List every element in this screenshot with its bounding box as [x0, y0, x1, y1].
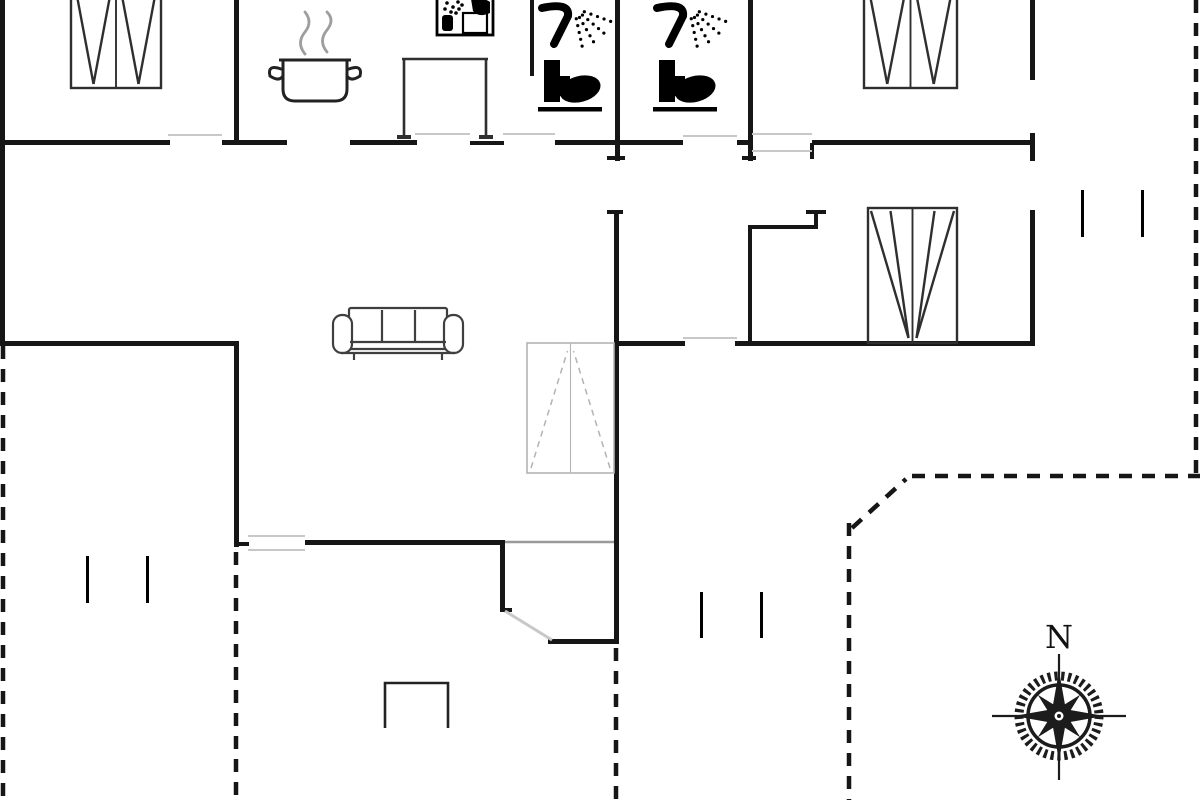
shower-bath1-spray-dot-0 — [583, 10, 586, 13]
sink-spray-dot-1 — [451, 5, 455, 9]
sink-spray-dot-5 — [443, 7, 447, 11]
top-wall-a — [0, 140, 170, 145]
bed-bedroom3-duvet-1 — [891, 211, 909, 338]
shower-bath2-spray-dot-19 — [696, 45, 699, 48]
sink-spray-dot-2 — [456, 0, 460, 4]
closet-north-wall — [748, 225, 818, 229]
steam-swirl-2 — [323, 12, 332, 52]
bed-bedroom2-duvet-2 — [914, 0, 934, 84]
shower-bath2-spray-dot-13 — [712, 27, 715, 30]
exterior-left-wall — [0, 0, 5, 346]
vestibule-south-wall — [548, 639, 618, 644]
terrace-tick-east-2 — [1141, 190, 1144, 237]
shower-bath2-spray-dot-7 — [691, 24, 694, 27]
entrance-door-swing — [505, 611, 552, 640]
bed-bedroom1-duvet-2 — [119, 0, 139, 84]
closet-west-wall — [748, 225, 752, 345]
shower-bath2-spray-dot-6 — [696, 22, 699, 25]
bed-bedroom1-duvet-0 — [74, 0, 94, 84]
toilet-bath1-tank — [544, 60, 560, 102]
bath2-east-wall — [748, 0, 753, 161]
shower-bath1-spray-dot-18 — [592, 40, 595, 43]
pot-body — [283, 60, 347, 101]
shower-bath1-spray-dot-8 — [596, 15, 599, 18]
shower-bath1-spray-dot-6 — [581, 22, 584, 25]
bed-bedroom1-duvet-1 — [94, 0, 114, 84]
mid-wall-west — [0, 341, 239, 346]
sink-spray-dot-4 — [457, 7, 461, 11]
shower-bath1-spray-dot-5 — [586, 18, 589, 21]
sink-basin — [463, 13, 487, 33]
top-wall-c — [350, 140, 417, 145]
shower-bath1-spray-dot-19 — [581, 45, 584, 48]
bed-bedroom2-duvet-1 — [887, 0, 907, 84]
shower-bath2-spray-dot-4 — [704, 13, 707, 16]
floor-plan: N — [0, 0, 1200, 800]
bath-divider-wall — [615, 0, 620, 161]
top-wall-d — [470, 141, 504, 145]
shower-bath2-spray-dot-18 — [707, 40, 710, 43]
bedroom2-east-wall-upper — [1030, 0, 1035, 80]
counter-foot-right — [479, 135, 493, 139]
wall-end-tick-d — [607, 210, 623, 214]
shower-bath1-spray-dot-3 — [575, 17, 578, 20]
shower-bath1-spray-dot-17 — [602, 31, 605, 34]
shower-bath2-spray-dot-17 — [717, 31, 720, 34]
terrace-tick-south-1 — [700, 592, 703, 638]
pot-handle-right — [347, 68, 361, 79]
bed-bedroom3-duvet-0 — [871, 211, 909, 338]
entrance-step — [385, 683, 448, 728]
shower-bath1-spray-dot-16 — [609, 20, 612, 23]
bed-bedroom2-duvet-3 — [934, 0, 954, 84]
sink-soap — [442, 15, 453, 31]
shower-bath1-spray-dot-10 — [585, 28, 588, 31]
terrace-tick-west-2 — [146, 556, 149, 603]
shower-bath2-spray-dot-1 — [696, 13, 699, 16]
bed-extra-gray-duvet-1 — [574, 351, 611, 468]
shower-bath1-spray-dot-9 — [592, 22, 595, 25]
sink-stub-wall — [530, 0, 534, 76]
sofa-arm-left — [333, 315, 352, 353]
shower-bath1-arm — [542, 6, 568, 44]
pot-handle-left — [269, 68, 283, 79]
shower-bath1-spray-dot-12 — [602, 17, 605, 20]
vestibule-west-wall — [500, 540, 505, 612]
shower-bath2-spray-dot-8 — [711, 15, 714, 18]
shower-bath1-spray-dot-11 — [578, 31, 581, 34]
wall-end-tick-c — [1019, 141, 1031, 145]
terrace-tick-east-1 — [1081, 190, 1084, 237]
living-west-wall — [234, 341, 239, 547]
toilet-bath2-base — [653, 107, 717, 112]
bedroom3-east-wall — [1030, 210, 1035, 346]
top-wall-g — [812, 140, 1034, 145]
compass-north-label: N — [1045, 618, 1073, 656]
sink-spray-dot-3 — [449, 10, 453, 14]
toilet-bath2-tank — [659, 60, 675, 102]
sink-spray-dot-0 — [445, 1, 449, 5]
shower-bath1-spray-dot-7 — [576, 24, 579, 27]
shower-bath2-spray-dot-14 — [703, 34, 706, 37]
wall-end-tick-a — [607, 156, 625, 160]
shower-bath2-spray-dot-11 — [693, 31, 696, 34]
terrace-tick-south-2 — [760, 592, 763, 638]
shower-bath2-spray-dot-10 — [700, 28, 703, 31]
living-south-wall — [305, 540, 505, 545]
counter-foot-left — [397, 135, 411, 139]
shower-bath2-spray-dot-2 — [693, 16, 696, 19]
floor-plan-canvas: N — [0, 0, 1200, 800]
steam-swirl-1 — [301, 12, 310, 54]
bed-bedroom2-duvet-0 — [867, 0, 887, 84]
closet-stub-h — [806, 210, 826, 214]
sink-spray-dot-6 — [454, 11, 458, 15]
toilet-bath1-base — [538, 107, 602, 112]
shower-bath2-spray-dot-12 — [717, 17, 720, 20]
top-wall-b — [222, 140, 287, 145]
wall-end-tick-b — [742, 156, 756, 160]
terrace-corner-diagonal — [852, 479, 906, 528]
mid-wall-center — [614, 341, 685, 346]
shower-bath2-spray-dot-16 — [724, 20, 727, 23]
bedroom2-east-stub — [1030, 133, 1035, 161]
bed-extra-gray-duvet-0 — [531, 351, 568, 468]
sofa-arm-right — [444, 315, 463, 353]
bed-bedroom3-duvet-2 — [917, 211, 955, 338]
shower-bath1-spray-dot-14 — [588, 34, 591, 37]
compass-hub-dot — [1057, 714, 1061, 718]
shower-bath2-spray-dot-5 — [701, 18, 704, 21]
shower-bath2-arm — [657, 6, 683, 44]
shower-bath2-spray-dot-9 — [707, 22, 710, 25]
shower-bath1-spray-dot-4 — [589, 13, 592, 16]
terrace-tick-west-1 — [86, 556, 89, 603]
shower-bath1-spray-dot-13 — [597, 27, 600, 30]
shower-bath1-spray-dot-15 — [579, 38, 582, 41]
shower-bath2-spray-dot-15 — [694, 38, 697, 41]
wall-end-tick-e — [234, 542, 249, 546]
bedroom1-east-wall — [234, 0, 239, 145]
shower-bath2-spray-dot-3 — [690, 17, 693, 20]
shower-bath1-spray-dot-2 — [578, 16, 581, 19]
shower-bath2-spray-dot-0 — [698, 10, 701, 13]
bed-bedroom3-duvet-3 — [917, 211, 935, 338]
bed-bedroom1-duvet-3 — [139, 0, 159, 84]
sink-spray-dot-7 — [460, 3, 464, 7]
shower-bath1-spray-dot-1 — [581, 13, 584, 16]
